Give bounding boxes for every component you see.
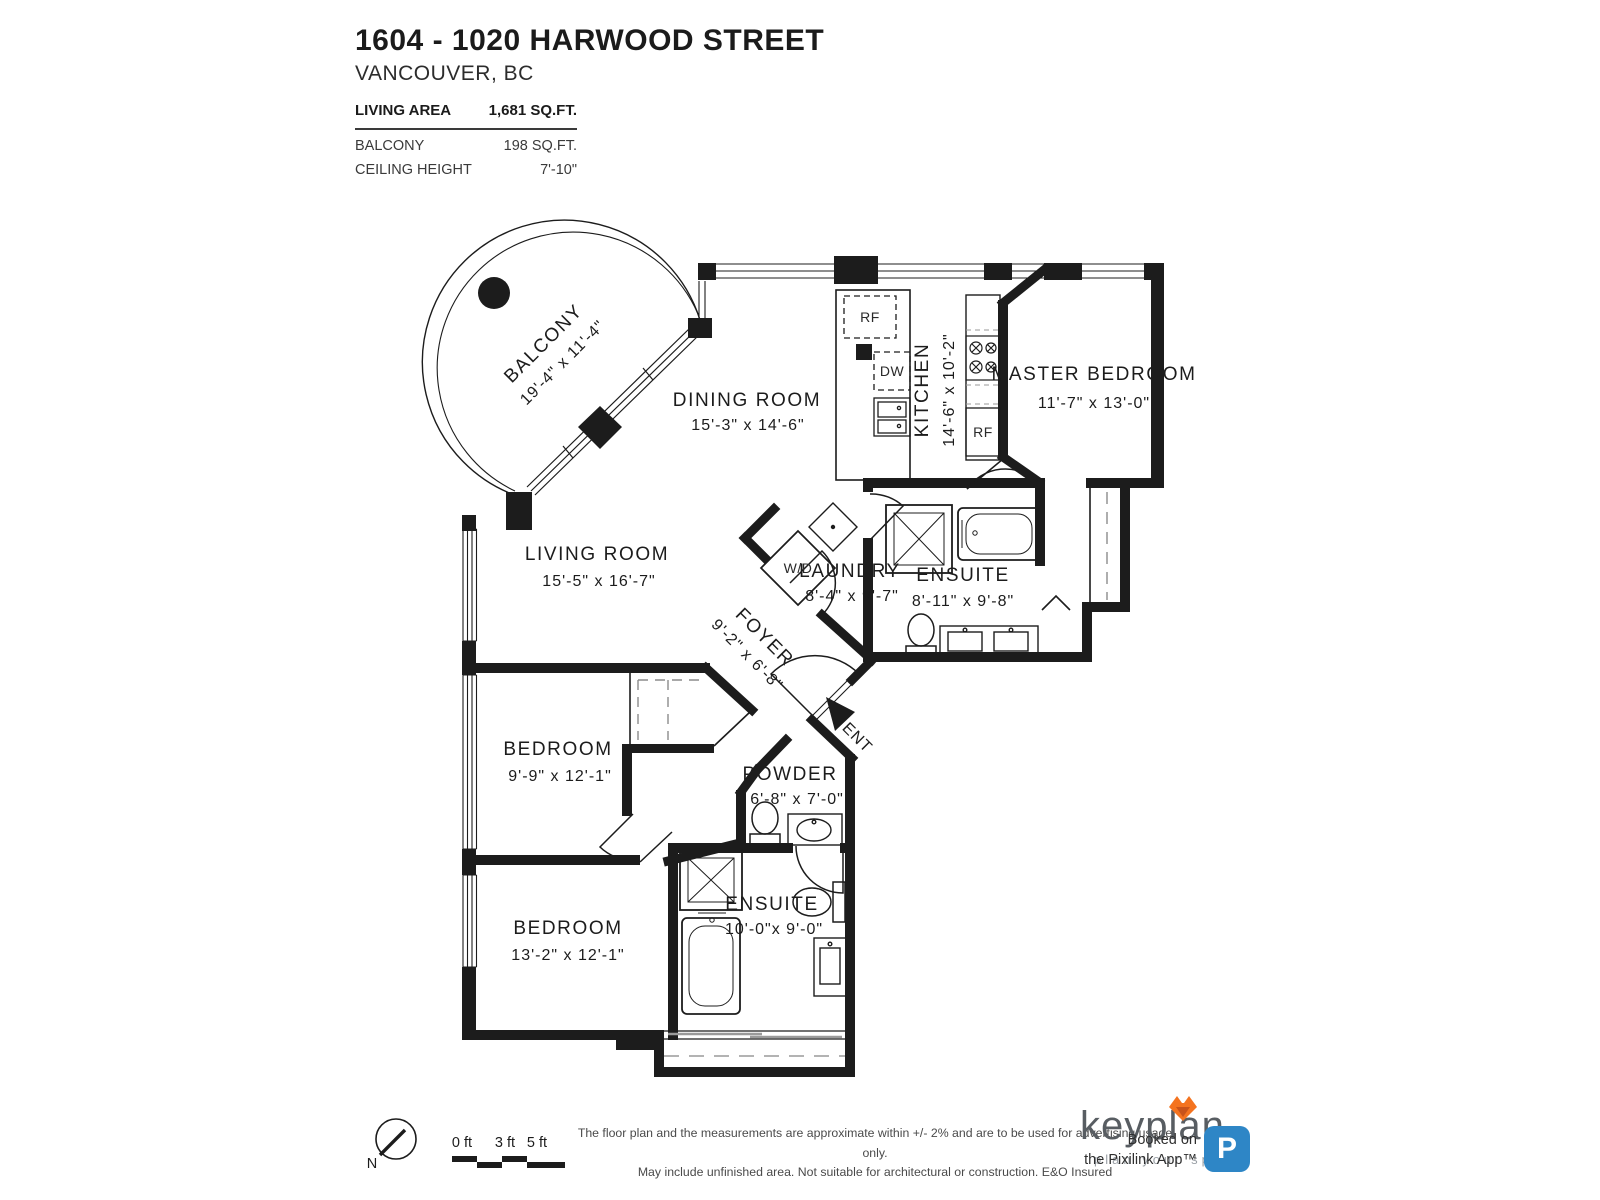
vanity-sink [814,938,846,996]
fixture-labels: RF DW RF W/D [784,309,993,576]
ensuite2-dims: 10'-0"x 9'-0" [725,921,823,938]
master-name: MASTER BEDROOM [991,364,1196,385]
kitchen-label: KITCHEN 14'-6" x 10'-2" [912,333,958,446]
rf-label: RF [860,309,880,325]
powder-name: POWDER [742,764,837,785]
ensuite2-name: ENSUITE [725,894,819,915]
fox-icon [1167,1094,1199,1122]
floorplan-page: 1604 - 1020 HARWOOD STREET VANCOUVER, BC… [0,0,1600,1200]
bedroom1-closet [630,672,750,746]
bedroom1-dims: 9'-9" x 12'-1" [508,768,612,785]
powder-fixtures [750,802,842,845]
room-dims: 14'-6" x 10'-2" [941,333,958,446]
laundry-name: LAUNDRY [799,561,901,582]
booked-line1: Booked on [1040,1131,1197,1151]
pixilink-badge: P [1204,1126,1250,1172]
scale-bar: 0 ft 3 ft 5 ft [452,1135,565,1168]
floor-plan-svg: ENT BALCONY 19'-4" x 11'-4" DINING ROOM … [0,0,1600,1200]
room-name: KITCHEN [912,343,933,438]
bay-closet [664,1031,845,1056]
double-vanity [940,626,1038,656]
bedroom1-name: BEDROOM [503,739,612,760]
living-dims: 15'-5" x 16'-7" [542,573,655,590]
north-arrow: N [367,1119,416,1172]
bedroom2-name: BEDROOM [513,918,622,939]
bedroom2-dims: 13'-2" x 12'-1" [511,947,624,964]
master-dims: 11'-7" x 13'-0" [1038,395,1150,412]
north-label: N [367,1156,377,1172]
rf-side-label: RF [973,424,993,440]
pixilink-caption: Booked on the Pixilink App™ [1040,1131,1197,1170]
kitchen-sink [874,398,910,436]
powder-dims: 6'-8" x 7'-0" [750,791,844,808]
bedroom1-door [600,814,633,860]
balcony-label: BALCONY 19'-4" x 11'-4" [497,297,609,409]
balcony-column [478,277,510,309]
ensuite2-door [796,846,843,893]
bathtub [958,508,1040,560]
toilet [750,802,780,845]
window-left-wall [463,529,477,967]
dining-name: DINING ROOM [673,390,822,411]
kitchen-post [856,344,872,360]
bifold-door [1042,596,1070,610]
ensuite1-name: ENSUITE [916,565,1010,586]
master-closet [1042,488,1107,610]
ensuite1-dims: 8'-11" x 9'-8" [912,593,1014,610]
pixilink-badge-letter: P [1217,1132,1237,1166]
scale-bar-steps [452,1156,565,1168]
scale-5: 5 ft [527,1135,547,1151]
booked-line2: the Pixilink App™ [1040,1151,1197,1171]
vanity-sink [788,814,842,845]
balcony-door-post [578,406,622,449]
dining-dims: 15'-3" x 14'-6" [691,417,804,434]
scale-0: 0 ft [452,1135,472,1151]
window-top-wall [699,264,1162,318]
wd-label: W/D [784,560,813,576]
dw-label: DW [880,363,905,379]
laundry-dims: 8'-4" x 9'-7" [805,588,899,605]
living-name: LIVING ROOM [525,544,669,565]
scale-3: 3 ft [495,1135,515,1151]
toilet [906,614,936,657]
